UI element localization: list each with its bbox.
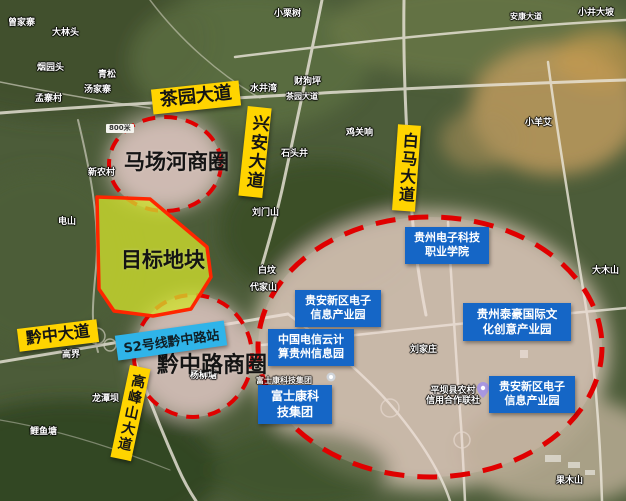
machanghe-business-circle-label: 马场河商圈 [124, 146, 229, 176]
scale-label: 800米 [106, 124, 134, 133]
park-label-guian-electronics-park-south: 贵安新区电子 信息产业园 [489, 376, 575, 413]
park-label-foxconn-group: 富士康科 技集团 [258, 385, 332, 424]
park-label-guian-electronics-park-north: 贵安新区电子 信息产业园 [295, 290, 381, 327]
target-plot-label: 目标地块 [121, 244, 205, 274]
park-label-taihao-cultural-park: 贵州泰豪国际文 化创意产业园 [463, 303, 571, 341]
park-label-china-telecom-cloud-park: 中国电信云计 算贵州信息园 [268, 329, 354, 366]
satellite-map: 曾家寨 大林头 烟园头 青松 汤家寨 孟寨村 小栗树 安康大道 小井大坡 水井湾… [0, 0, 626, 501]
park-label-electronics-vocational-college: 贵州电子科技 职业学院 [405, 227, 489, 264]
annotation-shapes [0, 0, 626, 501]
